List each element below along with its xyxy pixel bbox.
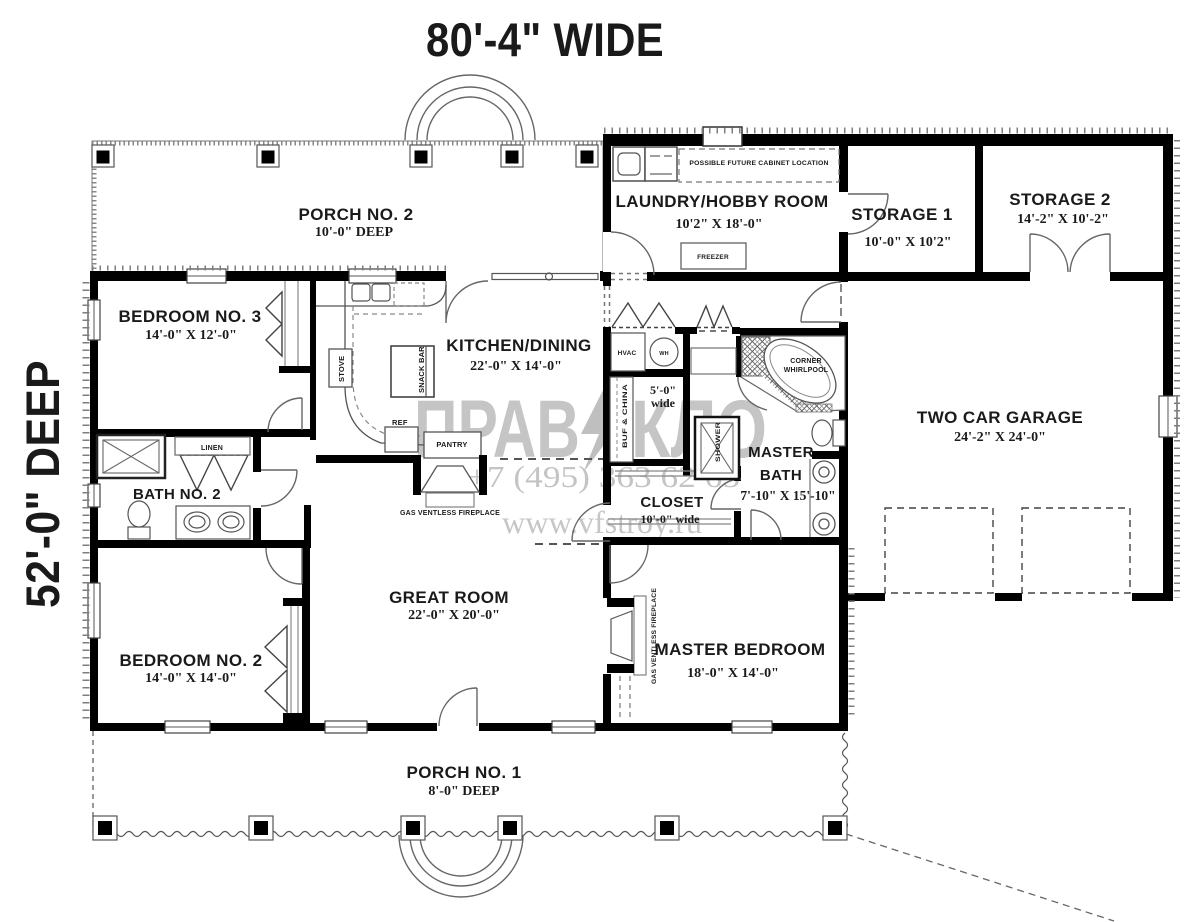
svg-text:8'-0" DEEP: 8'-0" DEEP	[428, 784, 500, 799]
svg-text:FREEZER: FREEZER	[697, 254, 729, 261]
svg-text:BEDROOM NO. 3: BEDROOM NO. 3	[118, 307, 261, 326]
svg-text:LINEN: LINEN	[201, 445, 223, 452]
svg-text:10'-0" X 10'2": 10'-0" X 10'2"	[864, 235, 951, 250]
svg-text:14'-0" X 14'-0": 14'-0" X 14'-0"	[145, 671, 237, 686]
svg-text:5'-0": 5'-0"	[650, 383, 676, 397]
svg-text:SHOWER: SHOWER	[715, 422, 722, 462]
svg-text:PANTRY: PANTRY	[436, 440, 467, 449]
svg-text:18'-0" X 14'-0": 18'-0" X 14'-0"	[687, 666, 779, 681]
svg-text:STORAGE 2: STORAGE 2	[1009, 190, 1111, 209]
svg-text:WHIRLPOOL: WHIRLPOOL	[784, 367, 829, 374]
svg-text:52'-0" DEEP: 52'-0" DEEP	[16, 360, 69, 608]
svg-text:10'2" X 18'-0": 10'2" X 18'-0"	[675, 217, 762, 232]
svg-text:WH: WH	[659, 351, 669, 357]
svg-text:CLOSET: CLOSET	[640, 494, 703, 511]
svg-text:BUF & CHINA: BUF & CHINA	[623, 383, 629, 448]
svg-text:POSSIBLE FUTURE CABINET LOCATI: POSSIBLE FUTURE CABINET LOCATION	[689, 160, 828, 167]
svg-text:80'-4" WIDE: 80'-4" WIDE	[426, 13, 664, 66]
svg-text:10'-0" wide: 10'-0" wide	[641, 512, 701, 526]
svg-text:wide: wide	[651, 396, 676, 410]
svg-text:14'-2" X 10'-2": 14'-2" X 10'-2"	[1017, 212, 1109, 227]
svg-text:MASTER BEDROOM: MASTER BEDROOM	[655, 640, 826, 659]
svg-text:GAS VENTLESS FIREPLACE: GAS VENTLESS FIREPLACE	[400, 510, 500, 517]
svg-text:22'-0" X 14'-0": 22'-0" X 14'-0"	[470, 359, 562, 374]
svg-text:22'-0" X 20'-0": 22'-0" X 20'-0"	[408, 608, 500, 623]
svg-text:24'-2" X 24'-0": 24'-2" X 24'-0"	[954, 430, 1046, 445]
svg-text:STORAGE 1: STORAGE 1	[851, 205, 953, 224]
svg-text:BATH NO. 2: BATH NO. 2	[133, 486, 221, 503]
svg-text:PORCH NO. 1: PORCH NO. 1	[407, 763, 522, 782]
svg-text:HVAC: HVAC	[618, 350, 637, 357]
svg-text:STOVE: STOVE	[337, 356, 346, 382]
svg-text:10'-0" DEEP: 10'-0" DEEP	[315, 225, 394, 240]
svg-text:BEDROOM NO. 2: BEDROOM NO. 2	[119, 651, 262, 670]
svg-text:BATH: BATH	[760, 467, 802, 484]
svg-text:MASTER: MASTER	[748, 444, 814, 461]
svg-text:REF: REF	[392, 418, 408, 427]
svg-text:7'-10" X 15'-10": 7'-10" X 15'-10"	[740, 488, 835, 503]
svg-text:LAUNDRY/HOBBY ROOM: LAUNDRY/HOBBY ROOM	[615, 192, 828, 211]
svg-text:PORCH NO. 2: PORCH NO. 2	[299, 205, 414, 224]
svg-text:14'-0" X 12'-0": 14'-0" X 12'-0"	[145, 328, 237, 343]
svg-text:TWO CAR GARAGE: TWO CAR GARAGE	[917, 408, 1083, 427]
svg-text:CORNER: CORNER	[790, 358, 822, 365]
svg-text:GREAT ROOM: GREAT ROOM	[389, 588, 509, 607]
svg-text:SNACK BAR: SNACK BAR	[417, 346, 426, 393]
svg-text:KITCHEN/DINING: KITCHEN/DINING	[446, 336, 591, 355]
svg-text:GAS VENTLESS FIREPLACE: GAS VENTLESS FIREPLACE	[651, 588, 658, 684]
